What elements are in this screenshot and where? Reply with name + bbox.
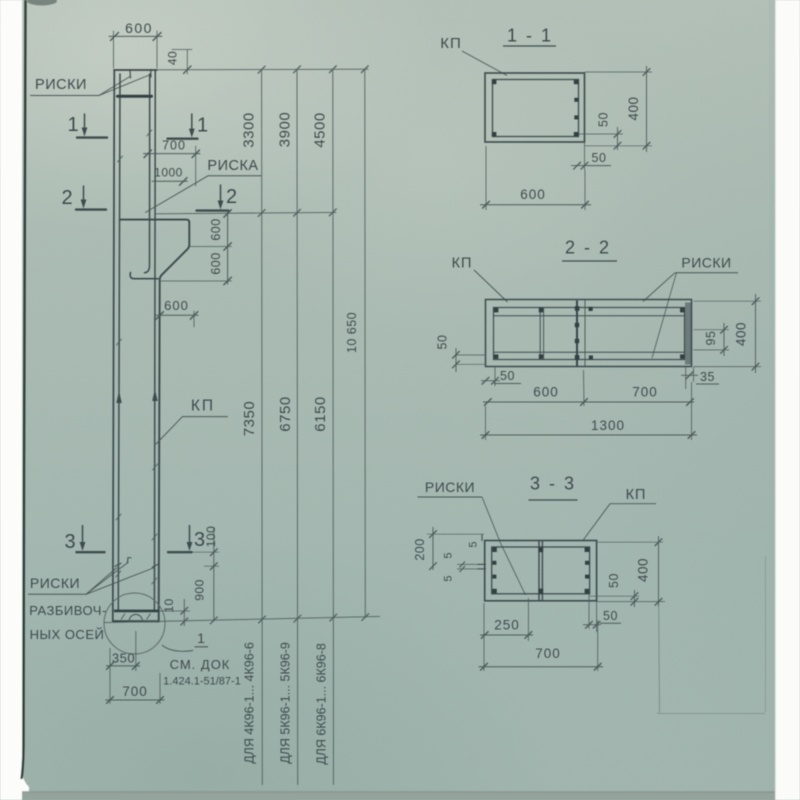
svg-text:10 650: 10 650 xyxy=(345,312,359,353)
svg-text:7350: 7350 xyxy=(241,401,258,436)
svg-text:НЫХ ОСЕЙ: НЫХ ОСЕЙ xyxy=(30,627,105,642)
svg-text:КП: КП xyxy=(452,256,473,272)
svg-text:1.424.1-51/87-1: 1.424.1-51/87-1 xyxy=(163,676,241,688)
svg-text:РИСКИ: РИСКИ xyxy=(681,255,731,271)
svg-text:ДЛЯ 4К96-1... 4К96-6: ДЛЯ 4К96-1... 4К96-6 xyxy=(243,642,257,764)
svg-text:2: 2 xyxy=(226,186,237,208)
svg-text:10: 10 xyxy=(162,598,176,612)
svg-text:50: 50 xyxy=(603,609,618,623)
svg-text:ДЛЯ 6К96-1... 6К96-8: ДЛЯ 6К96-1... 6К96-8 xyxy=(315,643,329,765)
svg-text:3: 3 xyxy=(64,531,75,553)
svg-text:2: 2 xyxy=(61,187,72,209)
svg-text:40: 40 xyxy=(166,51,180,65)
svg-text:1: 1 xyxy=(197,115,208,137)
svg-text:900: 900 xyxy=(193,579,207,601)
svg-text:200: 200 xyxy=(413,538,427,560)
svg-text:50: 50 xyxy=(597,112,611,127)
svg-text:6150: 6150 xyxy=(312,396,329,431)
svg-text:600: 600 xyxy=(209,218,223,240)
svg-text:КП: КП xyxy=(626,487,647,503)
svg-text:700: 700 xyxy=(122,684,148,699)
svg-text:РАЗБИВОЧ-: РАЗБИВОЧ- xyxy=(29,603,107,618)
svg-text:3300: 3300 xyxy=(241,112,258,147)
svg-text:50: 50 xyxy=(436,335,450,350)
svg-text:1000: 1000 xyxy=(154,166,183,180)
svg-text:600: 600 xyxy=(520,187,546,202)
svg-text:КП: КП xyxy=(191,398,215,415)
svg-text:2 - 2: 2 - 2 xyxy=(565,238,611,258)
svg-text:СМ. ДОК: СМ. ДОК xyxy=(170,657,231,672)
svg-text:4500: 4500 xyxy=(312,112,329,147)
svg-text:600: 600 xyxy=(164,298,189,313)
svg-text:5: 5 xyxy=(468,541,480,547)
svg-text:1: 1 xyxy=(197,630,205,646)
svg-text:700: 700 xyxy=(162,139,186,153)
svg-text:1 - 1: 1 - 1 xyxy=(507,26,553,46)
svg-text:700: 700 xyxy=(632,385,658,400)
svg-text:3 - 3: 3 - 3 xyxy=(530,474,576,494)
svg-text:1300: 1300 xyxy=(591,418,625,433)
svg-text:600: 600 xyxy=(533,385,559,400)
svg-text:100: 100 xyxy=(204,526,218,548)
svg-text:600: 600 xyxy=(125,20,153,36)
svg-text:95: 95 xyxy=(704,331,718,346)
svg-text:3900: 3900 xyxy=(277,112,294,147)
svg-text:50: 50 xyxy=(607,573,621,588)
svg-text:600: 600 xyxy=(209,252,223,274)
svg-text:РИСКИ: РИСКИ xyxy=(35,77,87,93)
svg-text:400: 400 xyxy=(734,322,749,346)
svg-text:ДЛЯ 5К96-1... 5К96-9: ДЛЯ 5К96-1... 5К96-9 xyxy=(279,642,293,764)
svg-text:1: 1 xyxy=(67,114,78,136)
svg-text:50: 50 xyxy=(500,369,515,383)
svg-text:6750: 6750 xyxy=(277,396,294,431)
svg-text:700: 700 xyxy=(535,646,561,661)
svg-text:50: 50 xyxy=(592,151,607,165)
svg-text:РИСКИ: РИСКИ xyxy=(425,479,475,495)
svg-text:250: 250 xyxy=(494,618,520,633)
svg-text:400: 400 xyxy=(636,558,651,582)
svg-text:РИСКА: РИСКА xyxy=(207,158,258,174)
svg-text:КП: КП xyxy=(440,35,462,52)
svg-text:5: 5 xyxy=(443,552,455,558)
svg-text:5: 5 xyxy=(443,575,455,581)
svg-text:35: 35 xyxy=(700,370,715,384)
svg-text:400: 400 xyxy=(626,96,641,120)
svg-text:РИСКИ: РИСКИ xyxy=(30,575,80,591)
svg-text:350: 350 xyxy=(112,651,135,666)
